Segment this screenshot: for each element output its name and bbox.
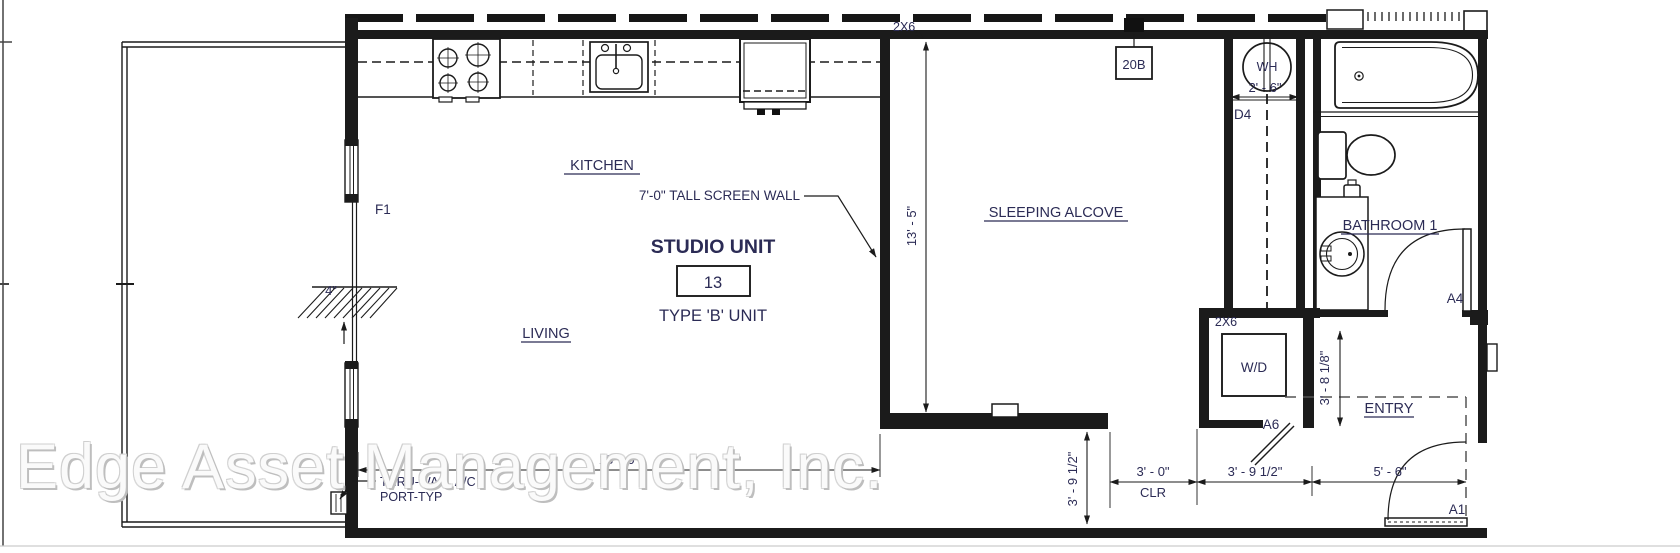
left-wall: [298, 18, 397, 538]
vanity-sink: [1316, 197, 1368, 310]
screen-wall-leader: [804, 196, 876, 257]
refrigerator: [740, 39, 810, 115]
framing-note-wd: 2X6: [1215, 315, 1237, 329]
room-label-entry: ENTRY: [1365, 401, 1414, 417]
wd-closet: [1199, 308, 1320, 465]
unit-number: 13: [704, 274, 722, 292]
bathtub: [1335, 42, 1478, 108]
panel-wall-mark: [1124, 18, 1144, 32]
screen-wall: [880, 33, 890, 429]
door-tag-d4: D4: [1234, 107, 1252, 122]
unit-type: TYPE 'B' UNIT: [659, 307, 767, 325]
unit-title: STUDIO UNIT: [651, 236, 776, 258]
kitchen-sink: [590, 42, 648, 92]
unit-title-block: STUDIO UNIT 13 TYPE 'B' UNIT: [651, 236, 776, 325]
balcony-walls: [116, 42, 345, 527]
room-label-living: LIVING: [522, 326, 570, 342]
room-label-alcove: SLEEPING ALCOVE: [989, 205, 1124, 221]
bottom-wall: [345, 528, 1487, 538]
door-tag-a4: A4: [1447, 291, 1464, 306]
dim-text-hall-height: 3' - 9 1/2": [1065, 451, 1080, 506]
washer-dryer-label: W/D: [1241, 360, 1267, 375]
dim-text-entry-width: 5' - 6": [1373, 464, 1406, 479]
screen-wall-note: 7'-0" TALL SCREEN WALL: [639, 188, 801, 203]
dimension-texts: 13' - 5" 18' - 0" 2' - 6" 4" 3' - 9 1/2"…: [325, 80, 1407, 506]
entry-wall-fixture: [1487, 344, 1497, 371]
dim-text-clear-width: 3' - 0": [1136, 464, 1169, 479]
framing-note-top: 2X6: [893, 20, 915, 34]
ac-note-line1: THRU-WALL A/C: [380, 475, 476, 489]
bathroom: [1313, 33, 1488, 325]
bath-faucet: [1344, 180, 1360, 198]
floor-plan-page: KITCHEN LIVING SLEEPING ALCOVE BATHROOM …: [0, 0, 1680, 553]
water-heater-label: WH: [1257, 60, 1278, 74]
room-label-bathroom: BATHROOM 1: [1343, 218, 1438, 234]
dim-text-wd-width: 3' - 9 1/2": [1228, 464, 1283, 479]
stove: [433, 39, 500, 102]
grade-hatch: [298, 287, 397, 318]
panel-tag: 20B: [1122, 57, 1145, 72]
door-tag-a1: A1: [1449, 502, 1466, 517]
top-edge-hatch: [1368, 12, 1459, 21]
window-tag-f1: F1: [375, 202, 391, 217]
dim-text-wh-width: 2' - 6": [1248, 80, 1281, 95]
door-tag-a6: A6: [1263, 417, 1280, 432]
dim-text-entry-depth: 3' - 8 1/8": [1317, 350, 1332, 405]
dim-text-slab: 4": [325, 283, 337, 298]
window-f1: [345, 140, 358, 202]
floorplan-svg: KITCHEN LIVING SLEEPING ALCOVE BATHROOM …: [0, 0, 1680, 553]
window-lower: [345, 363, 358, 427]
dim-text-alcove-height: 13' - 5": [904, 205, 919, 246]
dim-text-living-width: 18' - 0": [599, 452, 640, 467]
ac-note-line2: PORT-TYP: [380, 490, 442, 504]
alcove-bottom-wall: [880, 404, 1108, 429]
dim-text-clear-label: CLR: [1140, 485, 1166, 500]
room-label-kitchen: KITCHEN: [570, 158, 634, 174]
toilet: [1318, 132, 1395, 179]
kitchen-area: [358, 39, 880, 115]
top-wall-box: [1327, 10, 1363, 29]
